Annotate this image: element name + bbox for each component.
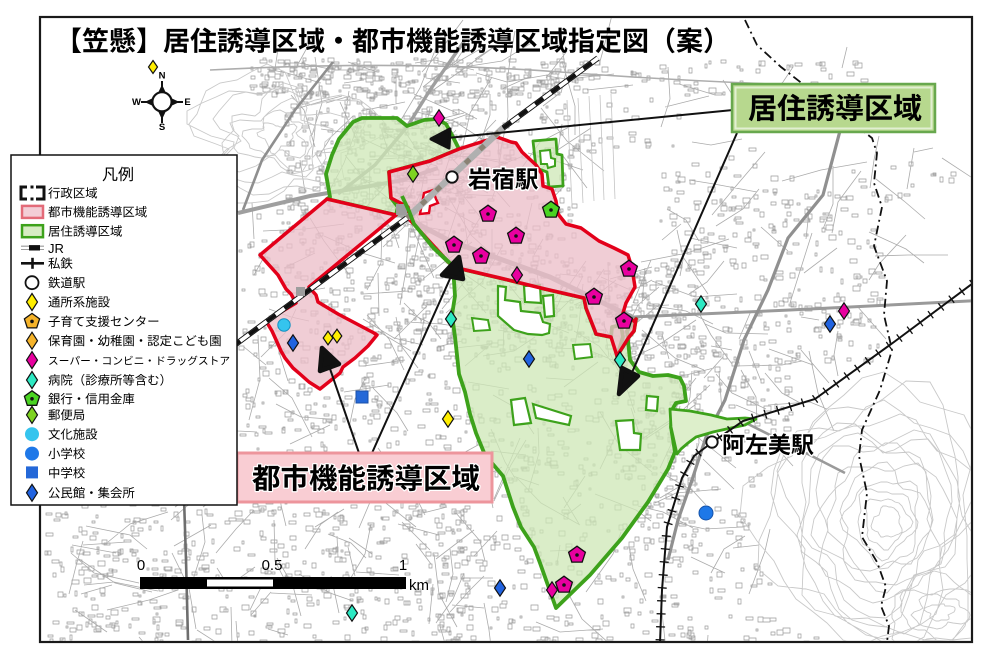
svg-text:W: W xyxy=(132,97,141,108)
svg-text:0.5: 0.5 xyxy=(262,557,283,574)
svg-text:0: 0 xyxy=(137,557,145,574)
svg-text:N: N xyxy=(159,71,166,82)
svg-text:JR: JR xyxy=(48,241,64,256)
svg-text:km: km xyxy=(409,577,429,594)
svg-text:1: 1 xyxy=(399,557,407,574)
svg-text:E: E xyxy=(184,97,190,108)
svg-text:S: S xyxy=(159,122,165,133)
